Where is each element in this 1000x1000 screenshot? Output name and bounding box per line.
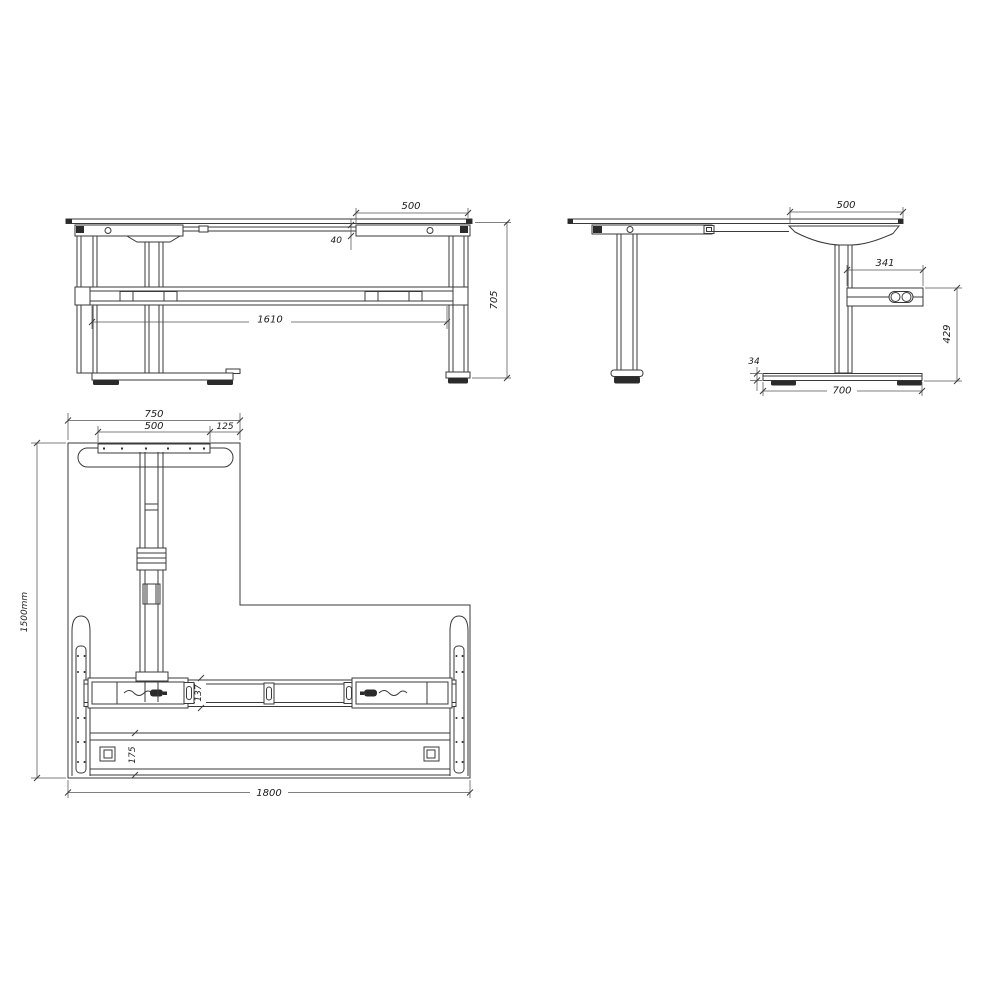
plan-dim-bracket-width: 500 [95, 421, 213, 442]
front-leg-bracket [127, 236, 180, 242]
front-dim-height-label: 705 [489, 290, 500, 309]
front-left-leg [145, 242, 163, 373]
front-tabletop [66, 219, 472, 224]
side-dim-control-box-floor-height: 429 [924, 285, 962, 384]
plan-desk-outline [68, 443, 470, 778]
side-left-foot [611, 370, 643, 377]
side-view: 500 341 429 34 [568, 200, 962, 397]
plan-dim-width-label: 1800 [256, 788, 281, 799]
side-tabletop [568, 219, 903, 224]
plan-dim-depth-label: 1500mm [20, 592, 30, 633]
plan-top-bracket [98, 444, 210, 453]
front-crossbar [75, 287, 468, 305]
plan-dim-bracket-width-label: 500 [144, 421, 163, 432]
side-right-leg [835, 245, 852, 373]
side-control-box [847, 288, 923, 306]
plan-column [137, 452, 166, 678]
side-cam-lock-right [902, 293, 911, 302]
side-dim-foot-depth-label: 700 [832, 386, 851, 397]
plan-slot-bracket-left [184, 683, 194, 704]
plan-dim-width: 1800 [65, 780, 473, 799]
plan-top-foot [78, 444, 233, 467]
plan-dim-rear-beam-width-label: 175 [128, 746, 138, 763]
drawing-canvas: 500 40 1610 705 [0, 0, 1000, 1000]
plan-center-connector [264, 683, 274, 704]
side-dim-control-box-width: 341 [844, 258, 926, 286]
side-left-leg [617, 234, 637, 370]
front-rail-connector [199, 226, 208, 232]
plan-column-bracket [143, 584, 160, 604]
side-cam-lock-left [891, 293, 900, 302]
side-support-bracket [789, 226, 899, 245]
side-dim-top-overhang-label: 500 [836, 200, 855, 211]
front-dim-top-overhang-label: 500 [401, 201, 420, 212]
side-dim-control-box-floor-height-label: 429 [942, 324, 953, 343]
front-view: 500 40 1610 705 [66, 201, 511, 385]
front-dim-leg-span-label: 1610 [257, 315, 282, 326]
plan-column-mount [136, 672, 168, 681]
plan-dim-beam-width-label: 137 [194, 684, 204, 701]
side-legs [611, 234, 852, 384]
front-left-foot [92, 373, 233, 380]
front-right-foot [446, 372, 470, 378]
side-top-rail [592, 225, 899, 245]
plan-dim-edge-margin-label: 125 [216, 422, 233, 432]
plan-view: 750 500 125 1500mm 137 [20, 409, 473, 799]
plan-dim-depth: 1500mm [20, 440, 66, 781]
plan-dim-foot-plate-width-label: 750 [144, 409, 163, 420]
side-foot [763, 374, 922, 386]
front-dim-frame-offset-label: 40 [331, 236, 343, 246]
side-dim-control-box-width-label: 341 [875, 258, 894, 269]
plan-dim-edge-margin: 125 [210, 422, 243, 435]
side-dim-foot-height: 34 [748, 357, 762, 391]
front-dim-leg-span: 1610 [89, 306, 450, 329]
side-dim-foot-height-label: 34 [748, 357, 760, 367]
plan-crossbeam [84, 672, 456, 708]
side-rail-connector [704, 226, 714, 234]
technical-drawing: 500 40 1610 705 [0, 0, 1000, 1000]
front-dim-height: 705 [472, 220, 511, 382]
front-top-rail [75, 225, 470, 242]
plan-rear-beam [90, 733, 450, 775]
plan-column-clamp [137, 548, 166, 570]
